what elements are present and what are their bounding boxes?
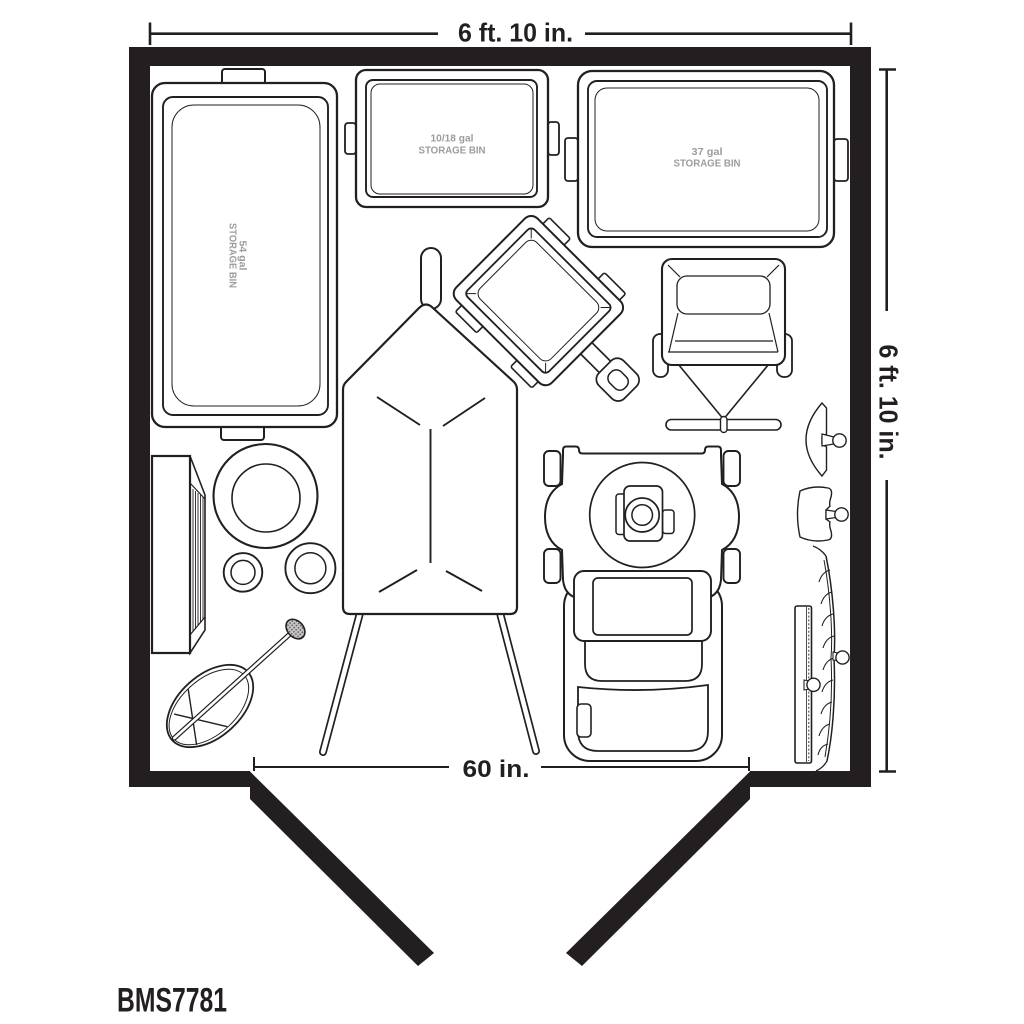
svg-text:60 in.: 60 in. [463, 756, 530, 783]
svg-text:BMS7781: BMS7781 [117, 982, 227, 1020]
svg-text:6 ft. 10 in.: 6 ft. 10 in. [458, 18, 573, 48]
svg-text:6 ft. 10 in.: 6 ft. 10 in. [874, 345, 904, 460]
